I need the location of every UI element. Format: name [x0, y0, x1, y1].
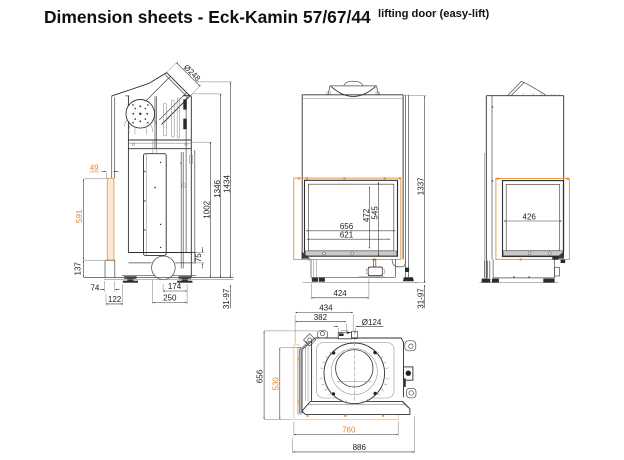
svg-text:174: 174 [168, 282, 182, 291]
svg-text:31-97: 31-97 [416, 288, 425, 309]
svg-text:122: 122 [108, 295, 122, 304]
svg-text:Dimension sheets - Eck-Kamin 5: Dimension sheets - Eck-Kamin 57/67/44 [44, 7, 371, 27]
svg-text:137: 137 [74, 262, 83, 276]
svg-text:591: 591 [75, 209, 84, 223]
svg-text:31-97: 31-97 [222, 288, 231, 309]
svg-text:1434: 1434 [223, 175, 232, 193]
svg-text:426: 426 [523, 212, 537, 221]
svg-text:621: 621 [340, 231, 354, 240]
svg-text:886: 886 [353, 443, 367, 452]
svg-text:434: 434 [319, 304, 333, 313]
svg-text:1346: 1346 [213, 179, 222, 197]
svg-text:382: 382 [314, 313, 328, 322]
svg-text:472: 472 [362, 208, 371, 222]
svg-text:424: 424 [333, 289, 347, 298]
svg-text:250: 250 [163, 294, 177, 303]
svg-text:530: 530 [271, 377, 280, 391]
svg-text:545: 545 [371, 206, 380, 220]
svg-text:lifting door (easy-lift): lifting door (easy-lift) [378, 8, 490, 20]
svg-text:1002: 1002 [203, 200, 212, 218]
svg-text:656: 656 [256, 369, 265, 383]
svg-text:74: 74 [90, 283, 99, 292]
svg-text:75: 75 [194, 253, 203, 262]
svg-text:49: 49 [90, 163, 99, 172]
svg-text:760: 760 [342, 426, 356, 435]
svg-text:1337: 1337 [417, 177, 426, 195]
svg-text:Ø124: Ø124 [362, 318, 382, 327]
